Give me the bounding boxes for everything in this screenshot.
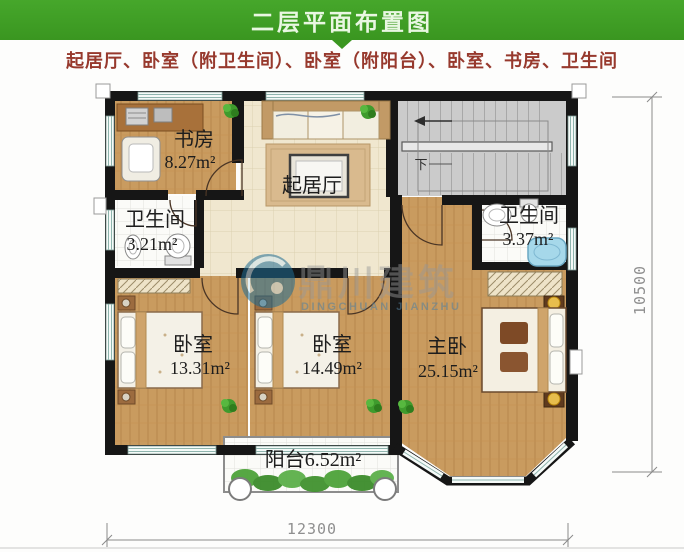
window xyxy=(106,304,114,360)
watermark-cn-text: 鼎川建筑 xyxy=(298,263,458,303)
dimension-height-value: 10500 xyxy=(631,265,649,315)
master-label: 主卧 xyxy=(427,335,467,358)
stair-down-label: 下 xyxy=(414,157,427,172)
corner-pier-right xyxy=(572,84,586,98)
bed-fold xyxy=(136,312,146,388)
wall-pier xyxy=(570,350,582,374)
bed-cushion xyxy=(500,322,528,344)
corner-pier-left xyxy=(96,84,110,98)
window xyxy=(138,92,222,100)
window xyxy=(568,228,576,270)
living-label: 起居厅 xyxy=(282,174,342,197)
wardrobe xyxy=(488,272,562,296)
window xyxy=(266,92,364,100)
lamp-icon xyxy=(548,393,560,405)
bed-cushion xyxy=(500,352,528,372)
pillow xyxy=(121,352,135,383)
study-label: 书房 xyxy=(174,128,214,151)
bedroom-left-label: 卧室 xyxy=(173,333,213,356)
printer-icon xyxy=(154,108,172,122)
dimension-width-value: 12300 xyxy=(287,520,337,538)
window xyxy=(106,210,114,250)
floorplan-page: 二层平面布置图 起居厅、卧室（附卫生间）、卧室（附阳台）、卧室、书房、卫生间 xyxy=(0,0,684,552)
study-area: 8.27m² xyxy=(165,152,216,172)
bed-fold xyxy=(273,312,283,388)
watermark-en-text: DINGCHUAN JIANZHU xyxy=(301,301,461,313)
pillow xyxy=(258,317,272,348)
window xyxy=(128,446,216,454)
wall-pier xyxy=(94,198,106,214)
bed-fold xyxy=(538,308,548,392)
balcony-column-right xyxy=(374,478,396,500)
bedroom-left-area: 13.31m² xyxy=(170,358,230,378)
bedroom-mid-area: 14.49m² xyxy=(302,358,362,378)
master-furniture xyxy=(482,272,566,407)
pillow xyxy=(121,317,135,348)
bath-right-area: 3.37m² xyxy=(503,229,554,249)
pillow xyxy=(550,314,563,347)
bedroom-mid-label: 卧室 xyxy=(312,333,352,356)
floorplan-drawing: 书房 8.27m² 卫生间 3.21m² 起居厅 卫生间 3.37m² 卧室 1… xyxy=(0,0,684,552)
wardrobe xyxy=(118,279,190,293)
dimension-bottom: 12300 xyxy=(0,520,684,548)
bath-right-label: 卫生间 xyxy=(499,204,559,227)
lamp-icon xyxy=(548,297,560,309)
computer-icon xyxy=(126,108,148,125)
pillow xyxy=(258,352,272,383)
balcony-label: 阳台6.52m² xyxy=(265,448,362,471)
bath-left-area: 3.21m² xyxy=(127,234,178,254)
stair-handrail xyxy=(402,142,552,151)
pillow xyxy=(550,351,563,384)
dimension-right: 10500 xyxy=(612,92,662,477)
balcony-column-left xyxy=(229,478,251,500)
master-area: 25.15m² xyxy=(418,361,478,381)
watermark: 鼎川建筑 DINGCHUAN JIANZHU xyxy=(241,254,461,313)
bath-left-label: 卫生间 xyxy=(125,208,185,231)
window xyxy=(106,116,114,166)
window xyxy=(568,116,576,166)
staircase xyxy=(402,101,566,195)
